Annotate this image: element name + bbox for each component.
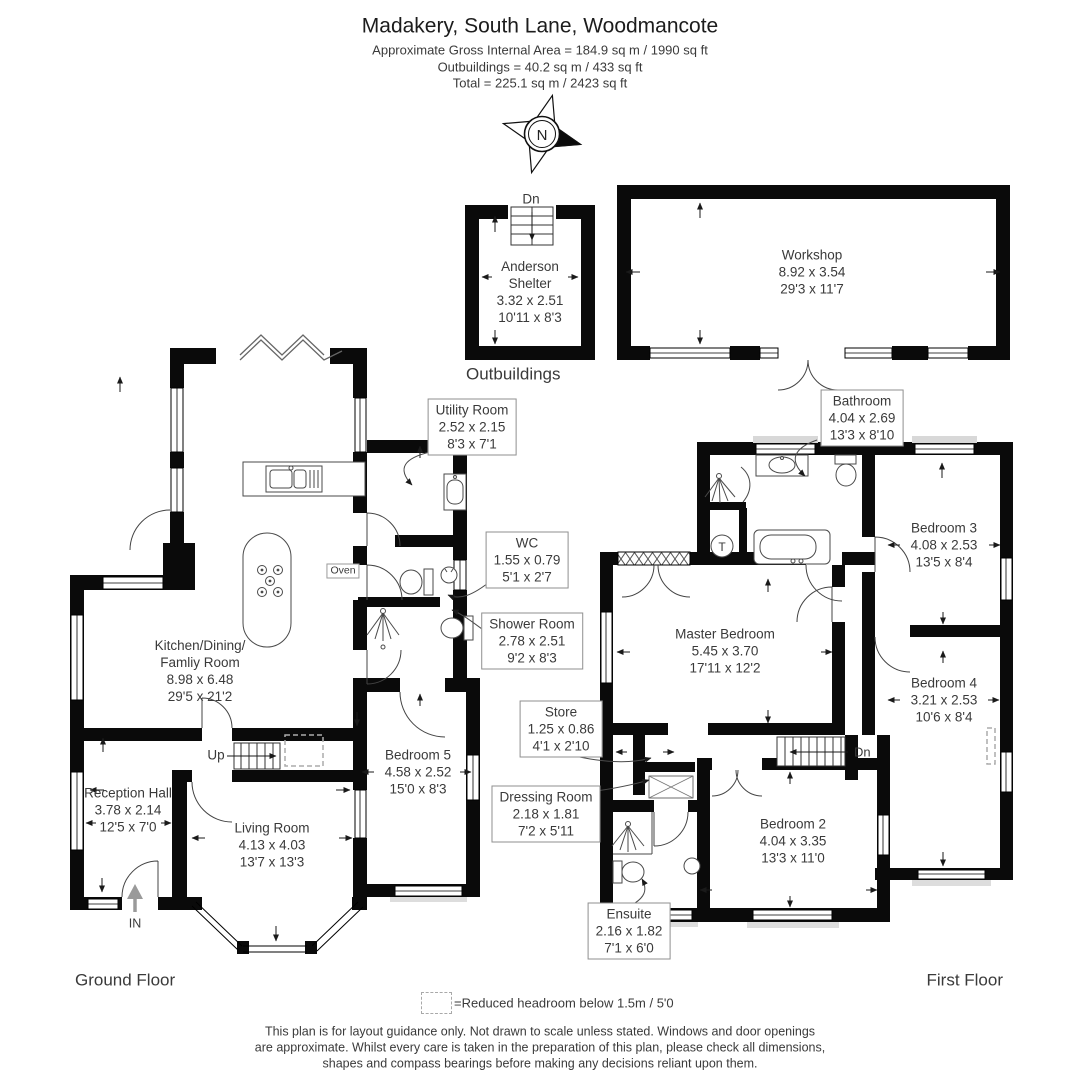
room-label-dressing-room: Dressing Room 2.18 x 1.81 7'2 x 5'11	[491, 786, 600, 843]
compass-rose: N	[503, 95, 580, 172]
dressing-wardrobe	[649, 776, 693, 798]
oven-label: Oven	[326, 564, 359, 579]
kitchen-counter	[243, 462, 365, 496]
room-label-master-bedroom: Master Bedroom 5.45 x 3.70 17'11 x 12'2	[675, 626, 775, 677]
disclaimer-line-2: are approximate. Whilst every care is ta…	[255, 1040, 825, 1057]
room-label-anderson-shelter: Anderson Shelter 3.32 x 2.51 10'11 x 8'3	[497, 258, 564, 326]
room-label-living-room: Living Room 4.13 x 4.03 13'7 x 13'3	[234, 820, 309, 871]
outbuilding-stairs-dn-label: Dn	[522, 191, 539, 208]
disclaimer-line-1: This plan is for layout guidance only. N…	[265, 1024, 815, 1041]
bay-window	[192, 902, 363, 952]
ground-floor-label: Ground Floor	[75, 972, 175, 989]
reduced-headroom-zone-bedroom4	[987, 728, 995, 764]
room-label-workshop: Workshop 8.92 x 3.54 29'3 x 11'7	[779, 247, 846, 298]
stairs-up-label: Up	[207, 747, 224, 764]
floorplan-page: N	[0, 0, 1080, 1080]
room-label-shower-room: Shower Room 2.78 x 2.51 9'2 x 8'3	[481, 613, 583, 670]
room-label-bedroom5: Bedroom 5 4.58 x 2.52 15'0 x 8'3	[385, 747, 452, 798]
room-label-ensuite: Ensuite 2.16 x 1.82 7'1 x 6'0	[588, 903, 671, 960]
entrance-in-label: IN	[129, 916, 142, 933]
outbuildings-section-label: Outbuildings	[466, 366, 561, 383]
room-label-wc: WC 1.55 x 0.79 5'1 x 2'7	[486, 532, 569, 589]
compass-north-label: N	[537, 127, 548, 144]
room-label-store: Store 1.25 x 0.86 4'1 x 2'10	[520, 701, 603, 758]
utility-sink	[444, 474, 466, 510]
room-label-reception-hall: Reception Hall 3.78 x 2.14 12'5 x 7'0	[84, 785, 172, 836]
disclaimer-line-3: shapes and compass bearings before makin…	[323, 1056, 758, 1073]
room-label-bedroom4: Bedroom 4 3.21 x 2.53 10'6 x 8'4	[911, 675, 978, 726]
bifold-door-zigzag	[240, 335, 342, 360]
workshop-double-door	[778, 360, 838, 390]
room-label-utility-room: Utility Room 2.52 x 2.15 8'3 x 7'1	[428, 399, 517, 456]
master-closet	[618, 552, 690, 565]
first-floor-label: First Floor	[927, 972, 1004, 989]
bathroom-shower	[705, 467, 750, 503]
room-label-kitchen: Kitchen/Dining/ Famliy Room 8.98 x 6.48 …	[155, 637, 246, 705]
entrance-in-arrow	[127, 884, 143, 912]
total-area-line: Total = 225.1 sq m / 2423 sq ft	[453, 75, 628, 92]
tank-label: T	[718, 540, 726, 554]
reduced-headroom-legend-swatch	[421, 992, 452, 1014]
outbuildings-area-line: Outbuildings = 40.2 sq m / 433 sq ft	[438, 59, 643, 76]
kitchen-island	[243, 533, 291, 647]
reduced-headroom-legend-text: =Reduced headroom below 1.5m / 5'0	[454, 995, 674, 1012]
wc-fixtures	[400, 567, 457, 595]
page-title: Madakery, South Lane, Woodmancote	[362, 18, 718, 35]
room-label-bedroom2: Bedroom 2 4.04 x 3.35 13'3 x 11'0	[760, 816, 827, 867]
room-label-bedroom3: Bedroom 3 4.08 x 2.53 13'5 x 8'4	[911, 520, 978, 571]
stairs-down-label: Dn	[854, 744, 871, 761]
gross-area-line: Approximate Gross Internal Area = 184.9 …	[372, 42, 708, 59]
room-label-bathroom: Bathroom 4.04 x 2.69 13'3 x 8'10	[821, 390, 904, 447]
